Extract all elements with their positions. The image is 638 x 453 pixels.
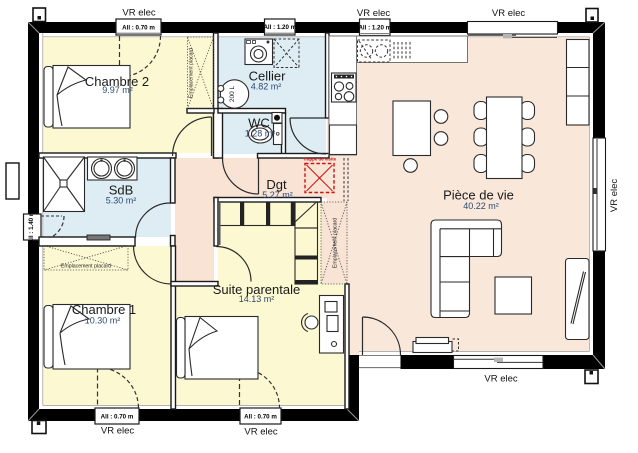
svg-text:Emplacement placard: Emplacement placard <box>61 264 111 270</box>
svg-text:14.13 m²: 14.13 m² <box>239 294 275 304</box>
svg-text:200 L: 200 L <box>229 85 236 102</box>
svg-text:5.30 m²: 5.30 m² <box>106 196 137 206</box>
svg-text:5.27 m²: 5.27 m² <box>262 190 293 200</box>
svg-text:VR elec: VR elec <box>484 374 518 385</box>
svg-text:VR elec: VR elec <box>122 8 156 19</box>
svg-text:Emplacement placard: Emplacement placard <box>333 218 339 268</box>
svg-text:1.28 m²: 1.28 m² <box>245 129 276 139</box>
svg-text:VR elec: VR elec <box>357 8 391 19</box>
svg-text:VR elec: VR elec <box>101 426 135 437</box>
svg-text:VR elec: VR elec <box>609 179 620 213</box>
svg-text:All : 1.20 m: All : 1.20 m <box>263 24 296 31</box>
svg-text:9.97 m²: 9.97 m² <box>102 85 133 95</box>
svg-text:VR elec: VR elec <box>244 427 278 438</box>
svg-text:All : 0.70 m: All : 0.70 m <box>122 24 155 31</box>
svg-text:VR elec: VR elec <box>492 8 526 19</box>
svg-text:All : 1.20 m: All : 1.20 m <box>358 24 391 31</box>
svg-text:4.82 m²: 4.82 m² <box>251 82 282 92</box>
svg-text:All : 0.70 m: All : 0.70 m <box>244 413 277 420</box>
svg-text:10.30 m²: 10.30 m² <box>85 316 121 326</box>
svg-text:All : 0.70 m: All : 0.70 m <box>101 413 134 420</box>
svg-text:40.22 m²: 40.22 m² <box>463 201 499 211</box>
svg-text:Emplacement placard: Emplacement placard <box>189 48 195 98</box>
svg-text:Trappe de visite: Trappe de visite <box>303 157 337 162</box>
svg-text:All : 1.40 m: All : 1.40 m <box>28 210 35 243</box>
